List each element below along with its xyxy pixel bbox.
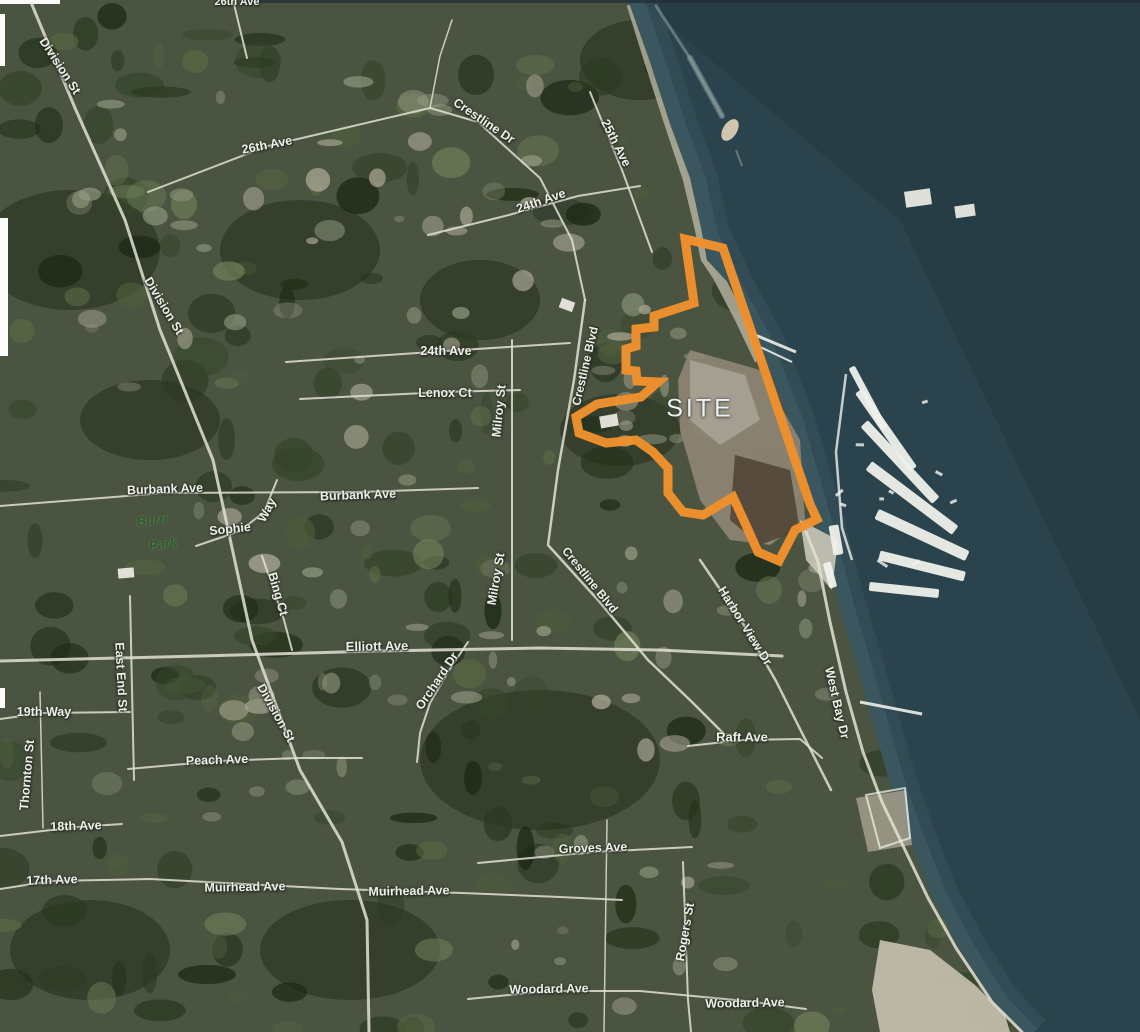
edge-artifact xyxy=(0,688,5,708)
satellite-imagery-layer xyxy=(0,0,1140,1032)
edge-artifact xyxy=(0,218,8,356)
site-location-map: 26th AveDivision St26th AveCrestline Dr2… xyxy=(0,0,1140,1032)
edge-artifact xyxy=(0,0,60,4)
building-roof xyxy=(118,567,135,578)
top-edge-strip xyxy=(240,0,1140,3)
edge-artifact xyxy=(0,14,5,66)
